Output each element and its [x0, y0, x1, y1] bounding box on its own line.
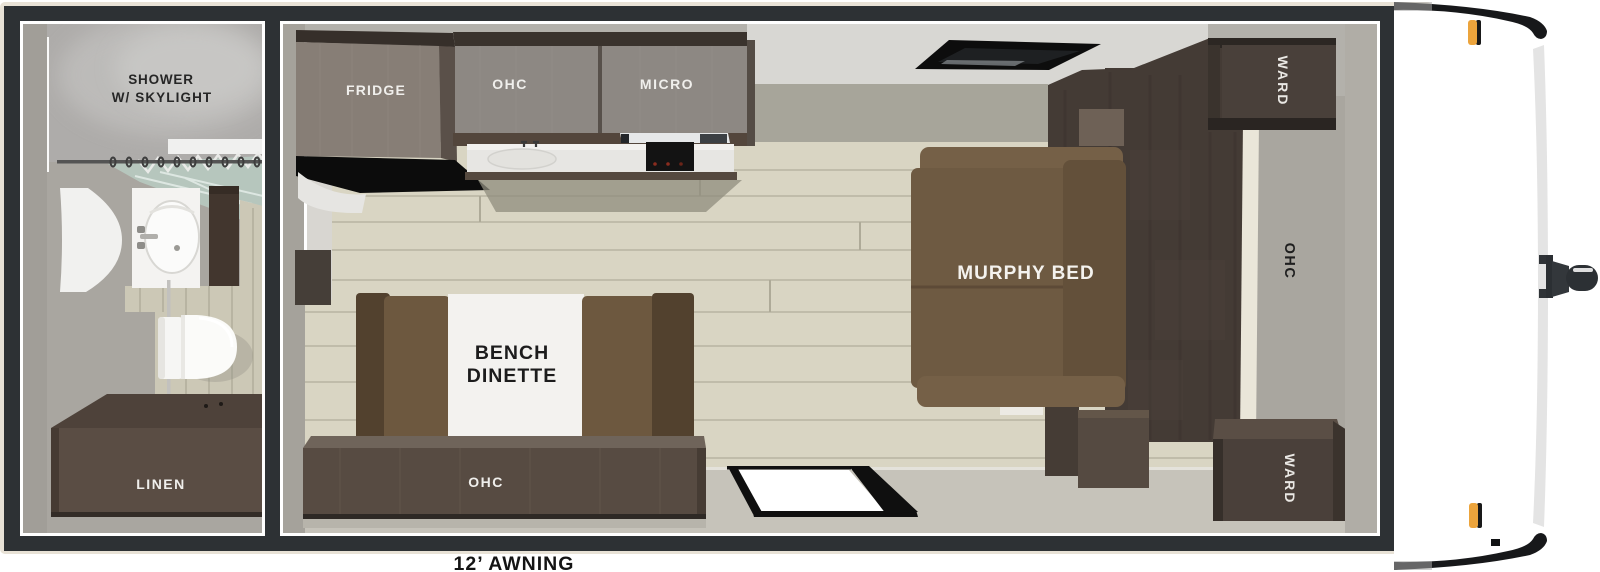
svg-text:BENCH: BENCH — [475, 342, 549, 364]
svg-text:WARD: WARD — [1275, 56, 1291, 107]
svg-text:LINEN: LINEN — [136, 476, 186, 492]
svg-text:SHOWER: SHOWER — [128, 72, 194, 87]
svg-text:FRIDGE: FRIDGE — [346, 82, 406, 98]
svg-text:W/ SKYLIGHT: W/ SKYLIGHT — [112, 90, 213, 105]
svg-text:OHC: OHC — [1281, 243, 1297, 280]
svg-text:MICRO: MICRO — [640, 76, 694, 92]
svg-text:12’ AWNING: 12’ AWNING — [454, 553, 575, 572]
svg-text:OHC: OHC — [468, 474, 504, 490]
svg-text:DINETTE: DINETTE — [467, 365, 557, 387]
svg-text:OHC: OHC — [492, 76, 528, 92]
svg-text:WARD: WARD — [1282, 454, 1298, 505]
svg-text:MURPHY BED: MURPHY BED — [957, 263, 1094, 284]
